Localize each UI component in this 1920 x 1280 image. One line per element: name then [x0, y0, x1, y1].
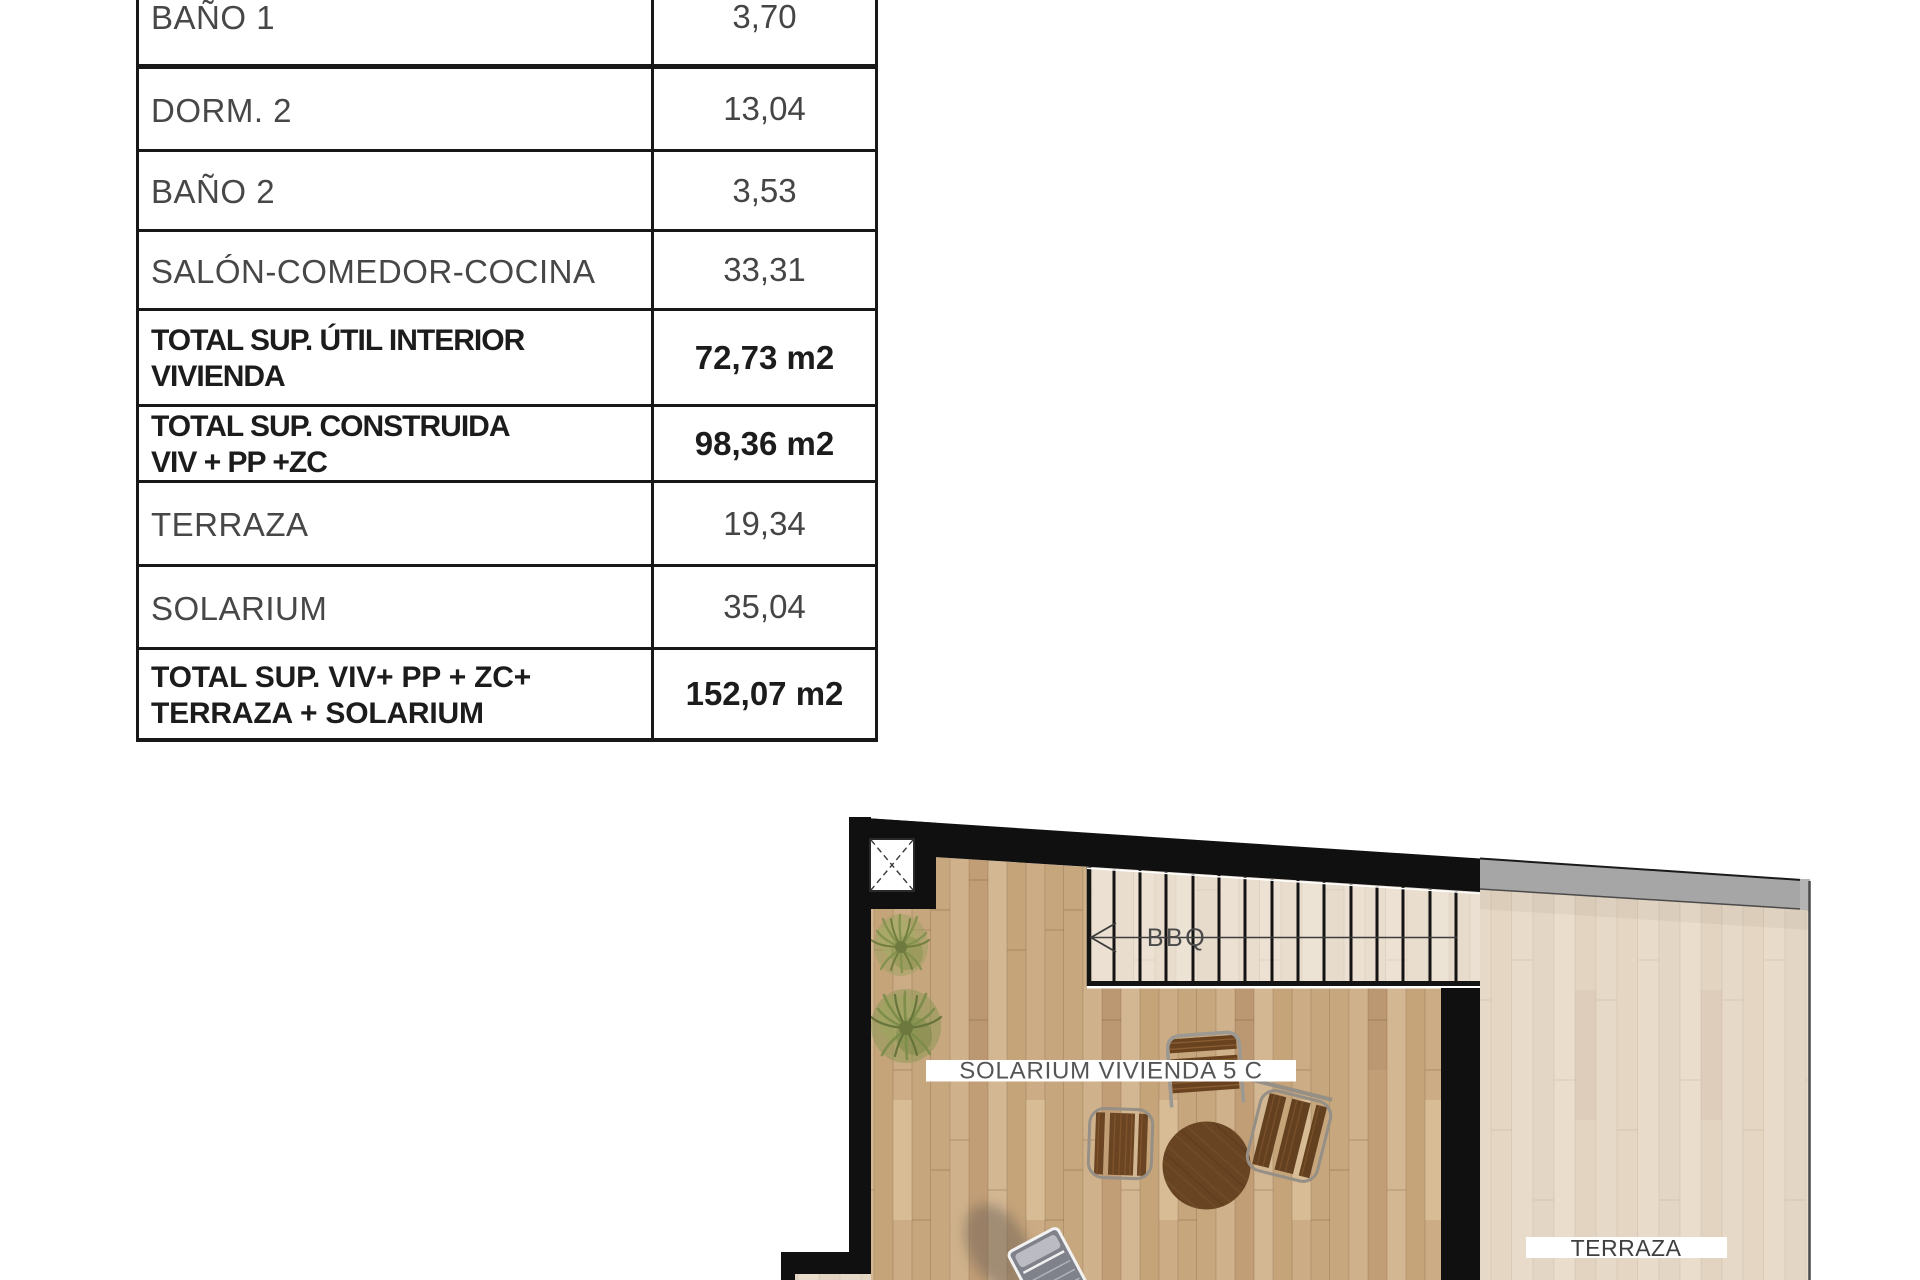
svg-text:BBQ: BBQ — [1147, 924, 1207, 952]
svg-text:SOLARIUM VIVIENDA 5 C: SOLARIUM VIVIENDA 5 C — [959, 1058, 1263, 1085]
svg-text:TERRAZA: TERRAZA — [1571, 1235, 1682, 1261]
